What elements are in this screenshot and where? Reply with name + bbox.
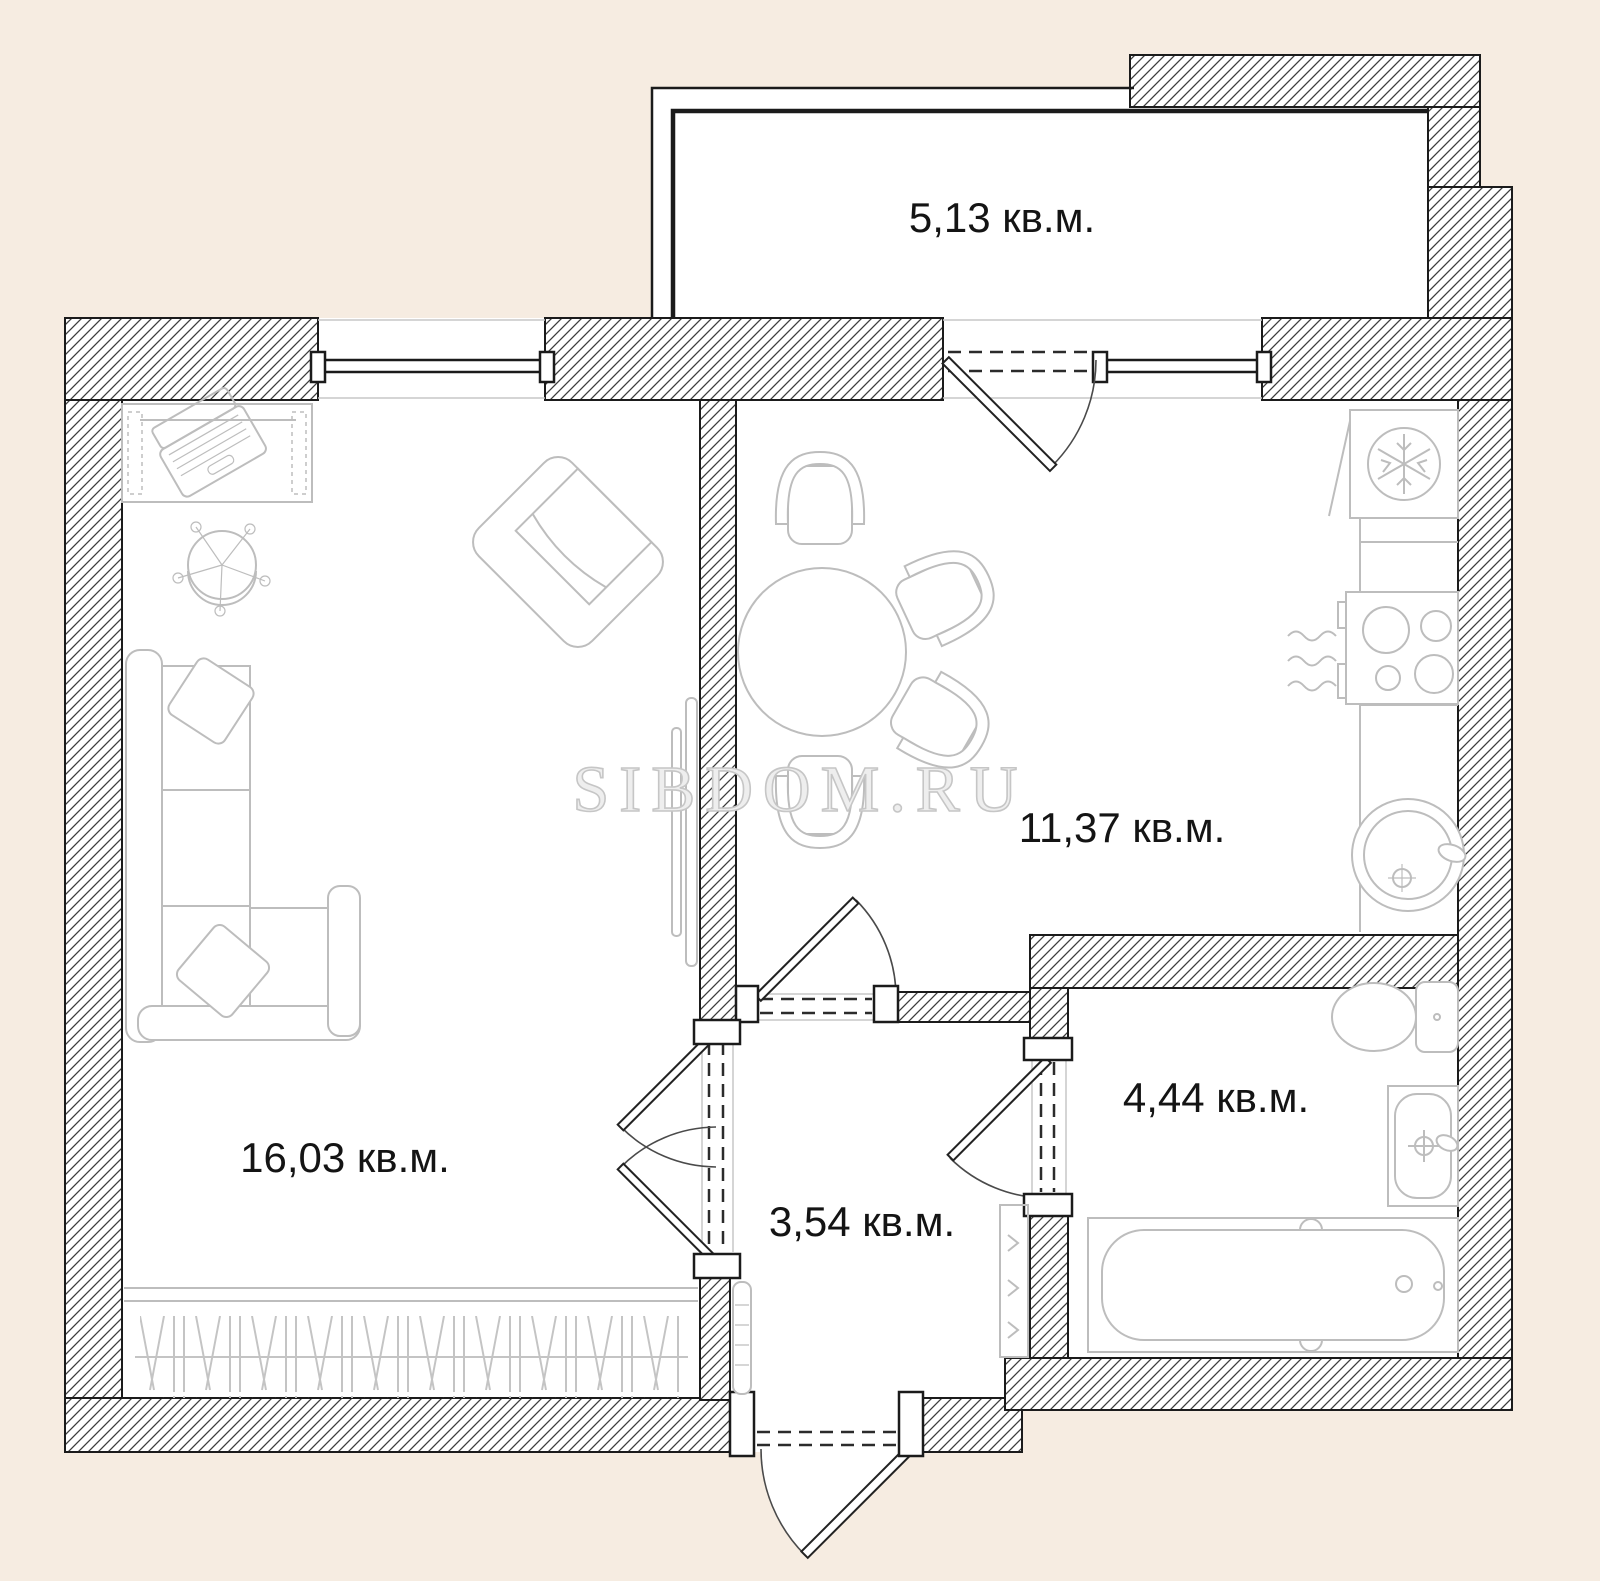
bathroom-area-label: 4,44 кв.м. — [1123, 1077, 1309, 1119]
floor-plan-drawing — [0, 0, 1600, 1581]
balcony-area-label: 5,13 кв.м. — [909, 197, 1095, 239]
hall-cabinet-icon — [733, 1282, 751, 1394]
kitchen-area-label: 11,37 кв.м. — [1019, 807, 1226, 849]
fridge-snowflake-icon — [1350, 410, 1458, 518]
living-room-area-label: 16,03 кв.м. — [240, 1137, 450, 1179]
hallway-area-label: 3,54 кв.м. — [769, 1201, 955, 1243]
toilet-icon — [1332, 982, 1458, 1052]
stove-icon — [1338, 592, 1458, 704]
dining-table-icon — [738, 568, 906, 736]
bathtub-icon — [1088, 1218, 1458, 1352]
floor-plan: 5,13 кв.м. 11,37 кв.м. 16,03 кв.м. 3,54 … — [0, 0, 1600, 1581]
